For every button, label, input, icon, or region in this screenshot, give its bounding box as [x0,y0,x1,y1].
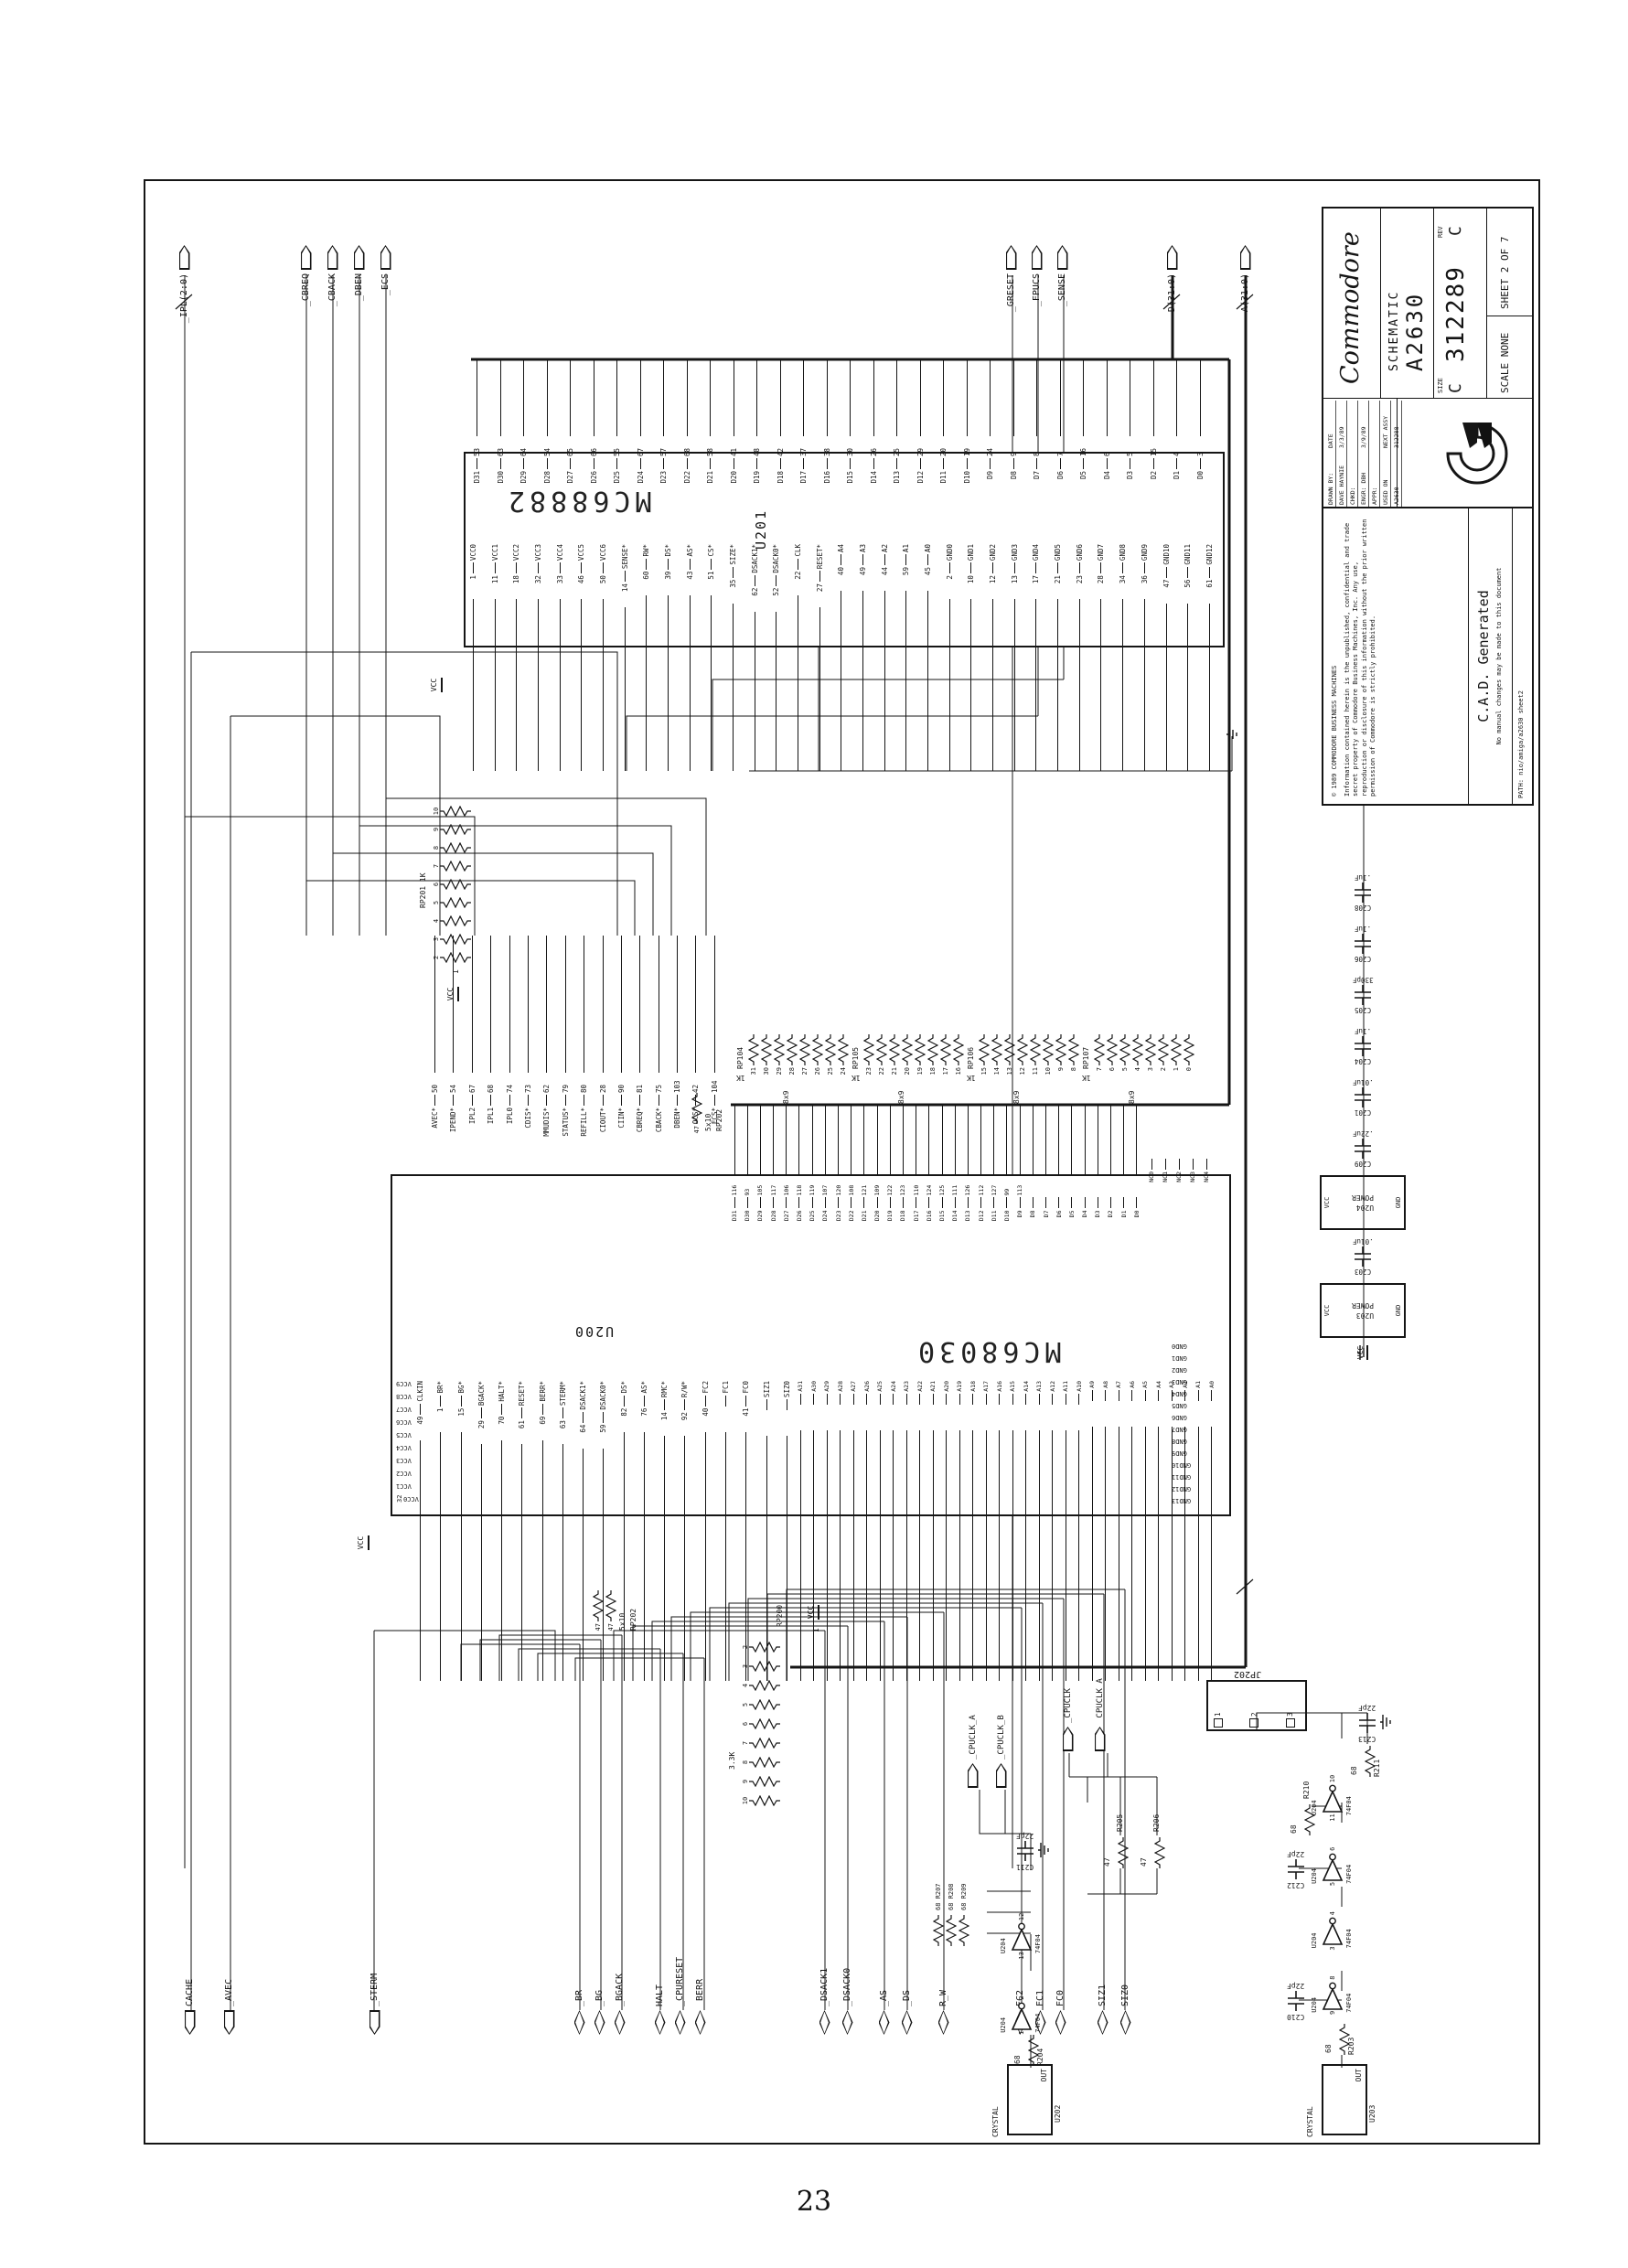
pull-resistor: 3 [1144,954,1157,1082]
resistor-icon [440,897,473,908]
resistor-icon [1107,1032,1118,1065]
pin: D67 [1056,359,1065,550]
copyright-block: © 1989 COMMODORE BUSINESS MACHINES Infor… [1322,507,1534,806]
page-number: 23 [0,2186,1628,2218]
resistor-icon [440,879,473,890]
pin: NC3 [1189,1137,1196,1283]
connector-arrow-icon [380,245,391,270]
resistor-icon [953,1032,964,1065]
series-resistor: 47 [691,1091,703,1140]
inverter-icon [1322,1782,1344,1813]
capacitor: C201.01uF [1353,1078,1374,1117]
pull-resistor: 8 [742,1757,782,1768]
clock-output-connector: _CPUCLK_A [1092,1678,1108,1751]
pin: D1099 [1003,1105,1011,1283]
pin: A25 [876,1379,884,1681]
size-value: C [1446,383,1465,393]
pin: A30 [810,1379,818,1681]
pin: D1229 [916,359,925,550]
page-connector: _BGACK [612,1974,627,2035]
pull-resistor: 9 [433,824,473,835]
capacitor: C205330pF [1353,976,1374,1014]
inverter-icon [1011,1920,1033,1952]
pull-resistor: 25 [824,954,837,1082]
pin: D1948 [753,359,761,550]
connector-arrow-icon [354,245,365,270]
pin: D21121 [861,1105,868,1283]
pull-resistor: 27 [798,954,811,1082]
connector-arrow-icon [1095,1727,1106,1751]
pin: D29105 [756,1105,764,1283]
pin: D1530 [846,359,854,550]
pin: 70HALT* [498,1379,506,1681]
pin: A14 [1023,1379,1030,1681]
title-block: Commodore SCHEMATIC A2630 SIZE C 312289 … [1322,207,1534,510]
pin: CIOUT*28 [599,936,607,1283]
connector-arrow-icon [1057,245,1068,270]
connector-group-dsack: _DSACK1_DSACK0 [817,1968,855,2035]
pin: D0 [1133,1105,1141,1283]
ground-icon [1226,727,1238,742]
pin: A10 [1076,1379,1083,1681]
pin: D924 [986,359,994,550]
pin: D2 [1107,1105,1114,1283]
resistor-icon [1043,1032,1054,1065]
pin: D24107 [821,1105,829,1283]
pull-resistor: 11 [1029,954,1042,1082]
page-connector: _CBREQ [298,245,314,306]
doc-number: 312289 [1442,265,1470,362]
vcc-symbol: VCC [358,1535,370,1550]
doc-type: SCHEMATIC [1387,291,1401,371]
pin: 61GND12 [1205,542,1214,771]
pin: A31 [797,1379,804,1681]
pin: A26 [863,1379,871,1681]
cap-c211: C211 22pF [1016,1841,1038,1861]
pin: GND2 [1172,1366,1187,1374]
connector-group-bus-arb: _BR_BG_BGACK [572,1974,627,2035]
pin: D13126 [964,1105,971,1283]
pin: D1120 [939,359,948,550]
pin: D23120 [835,1105,842,1283]
page-connector: _AS [876,1990,892,2035]
pull-resistor: 16 [952,954,965,1082]
capacitor-icon [1016,1841,1034,1861]
page-connector: _FPUCS [1029,245,1044,306]
connector-group-halt: HALT_CPURESET_BERR [652,1957,708,2035]
pin: NC1 [1162,1137,1169,1283]
pin: 63STERM* [559,1379,567,1681]
resistor-icon [933,1913,944,1946]
pin: D20109 [873,1105,881,1283]
clock-output-connector: _CPUCLK_B [993,1715,1009,1788]
series-resistor: 68 R207 [932,1883,945,1946]
pin: VCC8 [396,1393,412,1400]
pull-resistor: 3 [433,934,473,945]
pin: CDIS*73 [524,936,532,1283]
pin: A20 [943,1379,950,1681]
resistor-icon [440,915,473,926]
chip-ref-label: U200 [573,1323,614,1340]
pull-resistor: 31 [747,954,760,1082]
pin: A0 [1208,1379,1216,1681]
pin: VCC7 [396,1406,412,1413]
clock-output-connector: _CPUCLK_A [965,1715,980,1788]
pull-resistor: 7 [742,1738,782,1749]
resistor-icon [749,1738,782,1749]
capacitor-icon [1287,1991,1305,2011]
pin: GND12 [1172,1485,1191,1492]
inverter-icon [1322,1851,1344,1882]
pin: 2GND0 [946,542,954,771]
pull-resistor: 2 [742,1642,782,1653]
pin: D1638 [823,359,831,550]
pin: D2467 [637,359,645,550]
ground-icon [1038,1843,1050,1857]
connector-arrow-icon [675,2010,686,2035]
resistor-icon [440,934,473,945]
pin: D9113 [1016,1105,1023,1283]
resistor-pack-rp202-a: 4747 5x10 RP202 [592,1589,617,1638]
pin: 61RESET* [518,1379,526,1681]
pin: 23GND6 [1076,542,1084,771]
pull-resistor: 5 [433,897,473,908]
pin: 43AS* [686,542,694,771]
resistor-icon [749,1795,782,1806]
inverter-icon [1322,1980,1344,2011]
page-connector: HALT [652,1957,668,2035]
pull-resistor: 2 [1157,954,1170,1082]
resistor-icon [915,1032,926,1065]
pin: D17110 [913,1105,920,1283]
pull-resistor: 6 [742,1718,782,1729]
pin: A22 [916,1379,924,1681]
connector-group-cache-ctl: _CBREQ_CBACK_DBEN_ECS [298,245,393,414]
connector-arrow-icon [968,1763,979,1788]
series-resistor: 47 [592,1589,605,1638]
page-connector: A(31:0) [1237,245,1253,312]
connector-arrow-icon [1006,245,1017,270]
pin: A19 [956,1379,963,1681]
pull-resistor: 1 [1170,954,1183,1082]
pin: 40A4 [837,542,845,771]
rev-label: REV [1437,226,1445,238]
pin: D2555 [613,359,621,550]
pin: 51CS* [707,542,715,771]
pin: D89 [1010,359,1018,550]
pull-resistor: 8 [1067,954,1080,1082]
page-connector: SIZ1 [1095,1984,1110,2035]
pin: 92R/W* [680,1379,689,1681]
resistor-trio: 68 R20768 R20868 R209 [932,1883,970,1946]
resistor-icon [749,1699,782,1710]
pin: D7 [1043,1105,1050,1283]
capacitor-icon [1354,985,1372,1005]
pin: D15125 [938,1105,946,1283]
connector-arrow-icon [370,2010,380,2035]
page-connector: D(31:0) [1164,245,1180,312]
resistor-icon [440,861,473,872]
resistor-icon [440,824,473,835]
pull-resistor: 17 [939,954,952,1082]
pin: D2041 [730,359,738,550]
series-resistor: 68 R208 [945,1883,958,1946]
pin: GND1 [1172,1354,1187,1362]
pin: NC0 [1148,1137,1155,1283]
commodore-logo [1442,419,1512,488]
resistor-icon [1304,1803,1315,1835]
pin: D18123 [899,1105,906,1283]
pin: AVEC*50 [431,936,439,1283]
pin: D03 [1196,359,1205,550]
jumper-pin: 3 [1286,1696,1294,1728]
pin: IPL074 [506,936,514,1283]
pull-resistor: 10 [1042,954,1055,1082]
series-resistor: 47 [605,1589,617,1638]
pull-resistor: 10 [433,806,473,817]
resistor-icon [1055,1032,1066,1065]
resistor-icon [761,1032,772,1065]
pin: D1737 [799,359,808,550]
resistor-icon [946,1913,957,1946]
resistor-icon [863,1032,874,1065]
pin: 29BGACK* [477,1379,486,1681]
pin: D1325 [893,359,901,550]
copyright-body: Information contained herein is the unpu… [1344,518,1378,797]
page-connector: _BG [592,1974,607,2035]
sheet: SHEET 2 OF 7 [1499,237,1511,309]
pin: D28117 [770,1105,777,1283]
pin: D516 [1079,359,1087,550]
pin: 39DS* [664,542,672,771]
inverter-74f04: 5 U204 74F04 6 [1322,1847,1344,1886]
resistor-icon [749,1776,782,1787]
pin: D2666 [590,359,598,550]
inverter-row-b: 9 U204 74F04 8 3 U204 74F04 4 5 [1322,1775,1344,2015]
power-block-u203: VCC U203POWER GND [1320,1283,1406,1338]
page-connector: _CBACK [325,245,340,306]
pull-resistor: 19 [914,954,926,1082]
resistor-icon [691,1091,702,1124]
pin: GND6 [1172,1414,1187,1421]
resistor-icon [1030,1032,1041,1065]
pin: VCC9 [396,1380,412,1387]
pin: VCC1 [396,1482,412,1490]
pull-resistor: 4 [1131,954,1144,1082]
pin: 34GND8 [1119,542,1127,771]
pin: A5 [1141,1379,1149,1681]
resistor-icon [1145,1032,1156,1065]
connector-arrow-icon [842,2010,853,2035]
resistor-icon [1017,1032,1028,1065]
resistor-icon [440,806,473,817]
capacitor-icon [1287,1859,1305,1879]
u200-right-ctrl-pins: AVEC*50IPEND*54IPL267IPL168IPL074CDIS*73… [431,936,719,1283]
cap-c213: C213 22pF [1358,1713,1380,1733]
pin: D2964 [519,359,528,550]
pin: A17 [982,1379,990,1681]
pin: VCC4 [396,1444,412,1451]
pin: 14SENSE* [621,542,629,771]
pin: NC2 [1175,1137,1183,1283]
page-connector: _IPL(2:0) [177,245,192,323]
pin: D5 [1068,1105,1076,1283]
pin: D16124 [926,1105,933,1283]
pin: VCC6 [396,1418,412,1426]
connector-arrow-icon [902,2010,913,2035]
cad-note: No manual changes may be made to this do… [1495,508,1504,804]
pin: CBREQ*81 [636,936,644,1283]
copyright-line1: © 1989 COMMODORE BUSINESS MACHINES [1331,518,1339,797]
resistor-icon [749,1680,782,1691]
resistor-icon [1068,1032,1079,1065]
connector-group-cache: CACHE_AVEC [182,1979,237,2035]
pin: GND0 [1172,1343,1187,1350]
brand-name: Commodore [1336,231,1365,384]
pin: 56GND11 [1184,542,1192,771]
schematic-sheet: CACHE_AVEC _STERM _BR_BG_BGACK HALT_CPUR… [144,179,1540,2145]
pin: D3153 [473,359,481,550]
pin: CIIN*90 [617,936,626,1283]
pin: 13GND3 [1011,542,1019,771]
resistor-r203: 68 R203 [1336,2022,1354,2055]
pin: D2765 [566,359,574,550]
pin: FC1 [722,1379,730,1681]
pin: A1 [1194,1379,1202,1681]
resistor-icon [1119,1032,1130,1065]
schematic-page: CACHE_AVEC _STERM _BR_BG_BGACK HALT_CPUR… [0,0,1628,2268]
resistor-pack-rp105: 1KRP105 8x9 2322212019181716 [851,954,965,1082]
pull-resistor: 2 [433,952,473,963]
pin: 36GND9 [1141,542,1149,771]
page-connector: _BERR [692,1957,708,2035]
pin: D27106 [783,1105,790,1283]
pull-resistor: 6 [433,879,473,890]
inverter-74f04: 9 U204 74F04 8 [1322,1976,1344,2015]
cap-c210: C210 22pF [1287,1991,1309,2011]
pin: 21GND5 [1054,542,1062,771]
connector-arrow-icon [1063,1727,1074,1751]
resistor-icon [812,1032,823,1065]
cap-c212: C212 22pF [1287,1859,1309,1879]
ground-icon [1380,1715,1392,1729]
page-connector: SIZ0 [1118,1984,1133,2035]
page-connector: _BR [572,1974,587,2035]
doc-name: A2630 [1402,292,1428,371]
pin: D1426 [870,359,878,550]
pull-resistor: 29 [773,954,786,1082]
pin: A12 [1049,1379,1056,1681]
capacitor-icon [1354,883,1372,903]
resistor-r205: 47 R205 [1115,1835,1132,1868]
pull-resistor: 6 [1106,954,1119,1082]
connector-arrow-icon [1098,2010,1109,2035]
pin: 28GND7 [1097,542,1105,771]
resistor-icon [593,1589,604,1621]
pin: D1019 [963,359,971,550]
pin: DBEN*103 [673,936,681,1283]
inverter-row-a: 1 U204 74F04 2 13 U204 74F04 12 [1011,1913,1033,2035]
u200-right-data-pins: D31116D3093D29105D28117D27106D26118D2511… [731,1105,1141,1283]
pin: GND4 [1172,1390,1187,1397]
pull-resistor: 8 [433,842,473,853]
resistor-pack-rp104: 1KRP104 8x9 3130292827262524 [736,954,850,1082]
resistor-icon [927,1032,938,1065]
pull-resistor: 21 [888,954,901,1082]
pin: 11VCC1 [491,542,499,771]
resistor-r204: 68 R204 [1025,2033,1043,2066]
pin: A4 [1155,1379,1162,1681]
pin: D215 [1150,359,1158,550]
resistor-icon [1004,1032,1015,1065]
resistor-icon [979,1032,990,1065]
resistor-icon [799,1032,810,1065]
jumper-pin: 2 [1250,1696,1258,1728]
pin: 35SIZE* [729,542,737,771]
chip-part-label: MC68030 [914,1335,1061,1367]
page-connector: FC0 [1053,1990,1068,2035]
pull-resistor: 4 [433,915,473,926]
pin: A24 [890,1379,897,1681]
resistor-icon [1158,1032,1169,1065]
capacitor-icon [1354,934,1372,954]
page-connector: _DSACK1 [817,1968,832,2035]
pin: 32VCC0 [396,1495,419,1503]
connector-arrow-icon [574,2010,585,2035]
connector-group-abus: A(31:0) [1237,245,1253,414]
pin: 47GND10 [1162,542,1171,771]
u201-left-pins: 1VCC011VCC118VCC232VCC333VCC446VCC550VCC… [469,542,1214,771]
pin: GND10 [1172,1461,1191,1469]
pin: SIZ1 [763,1379,771,1681]
resistor-icon [1184,1032,1194,1065]
pin: D14111 [951,1105,959,1283]
pin: A29 [823,1379,830,1681]
resistor-icon [1154,1835,1165,1868]
connector-arrow-icon [1240,245,1251,270]
pin: D14 [1173,359,1181,550]
pin: A18 [969,1379,977,1681]
pull-resistor: 9 [1055,954,1067,1082]
pull-resistor: 5 [742,1699,782,1710]
pin: D35 [1126,359,1134,550]
cpuclk-outputs-b: _CPUCLK_CPUCLK_A [1060,1678,1108,1751]
pin: VCC2 [396,1470,412,1477]
connector-arrow-icon [224,2010,235,2035]
resistor-icon [605,1589,616,1621]
pin: D2158 [706,359,714,550]
pull-resistor: 26 [811,954,824,1082]
pin: STATUS*79 [562,936,570,1283]
pin: D8 [1029,1105,1036,1283]
pull-resistor: 4 [742,1680,782,1691]
pin: D3063 [497,359,505,550]
pin: D4 [1081,1105,1088,1283]
pin: 17GND4 [1032,542,1040,771]
pin: 46VCC5 [577,542,585,771]
connector-arrow-icon [655,2010,666,2035]
resistor-icon [749,1661,782,1672]
pin: 41FC0 [742,1379,750,1681]
connector-arrow-icon [1120,2010,1131,2035]
pin: VCC3 [396,1457,412,1464]
resistor-icon [825,1032,836,1065]
pull-resistor: 0 [1183,954,1195,1082]
series-resistor: 68 R209 [958,1883,970,1946]
vcc-symbol: VCC [1357,1345,1369,1360]
connector-arrow-icon [938,2010,949,2035]
pin: GND7 [1172,1426,1187,1433]
